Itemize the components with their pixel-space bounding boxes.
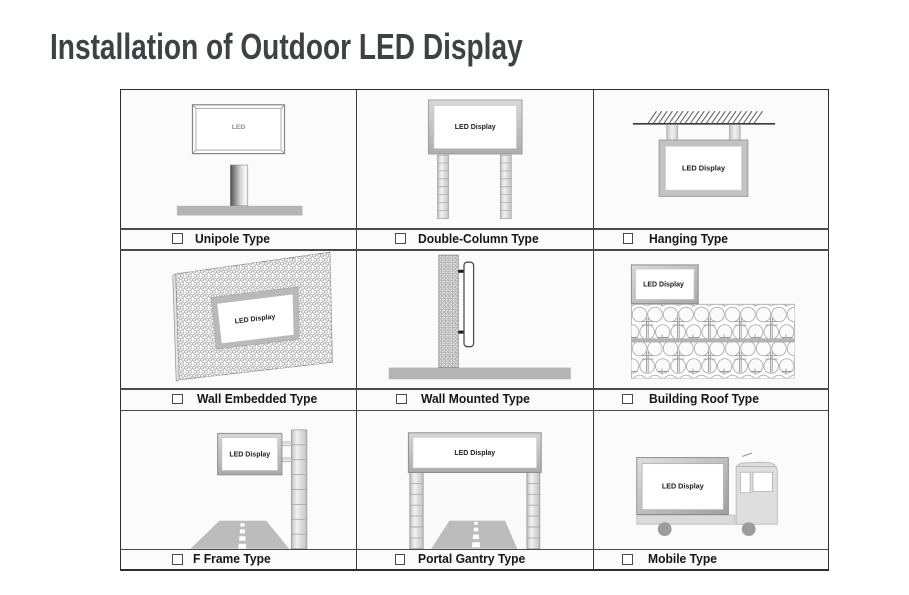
svg-text:LED Display: LED Display: [454, 450, 495, 457]
svg-text:LED Display: LED Display: [643, 281, 684, 288]
svg-text:LED Display: LED Display: [661, 481, 703, 490]
svg-text:LED Display: LED Display: [229, 451, 270, 458]
svg-text:LED Display: LED Display: [454, 124, 495, 131]
svg-text:LED Display: LED Display: [681, 164, 725, 173]
svg-text:LED: LED: [231, 124, 245, 131]
